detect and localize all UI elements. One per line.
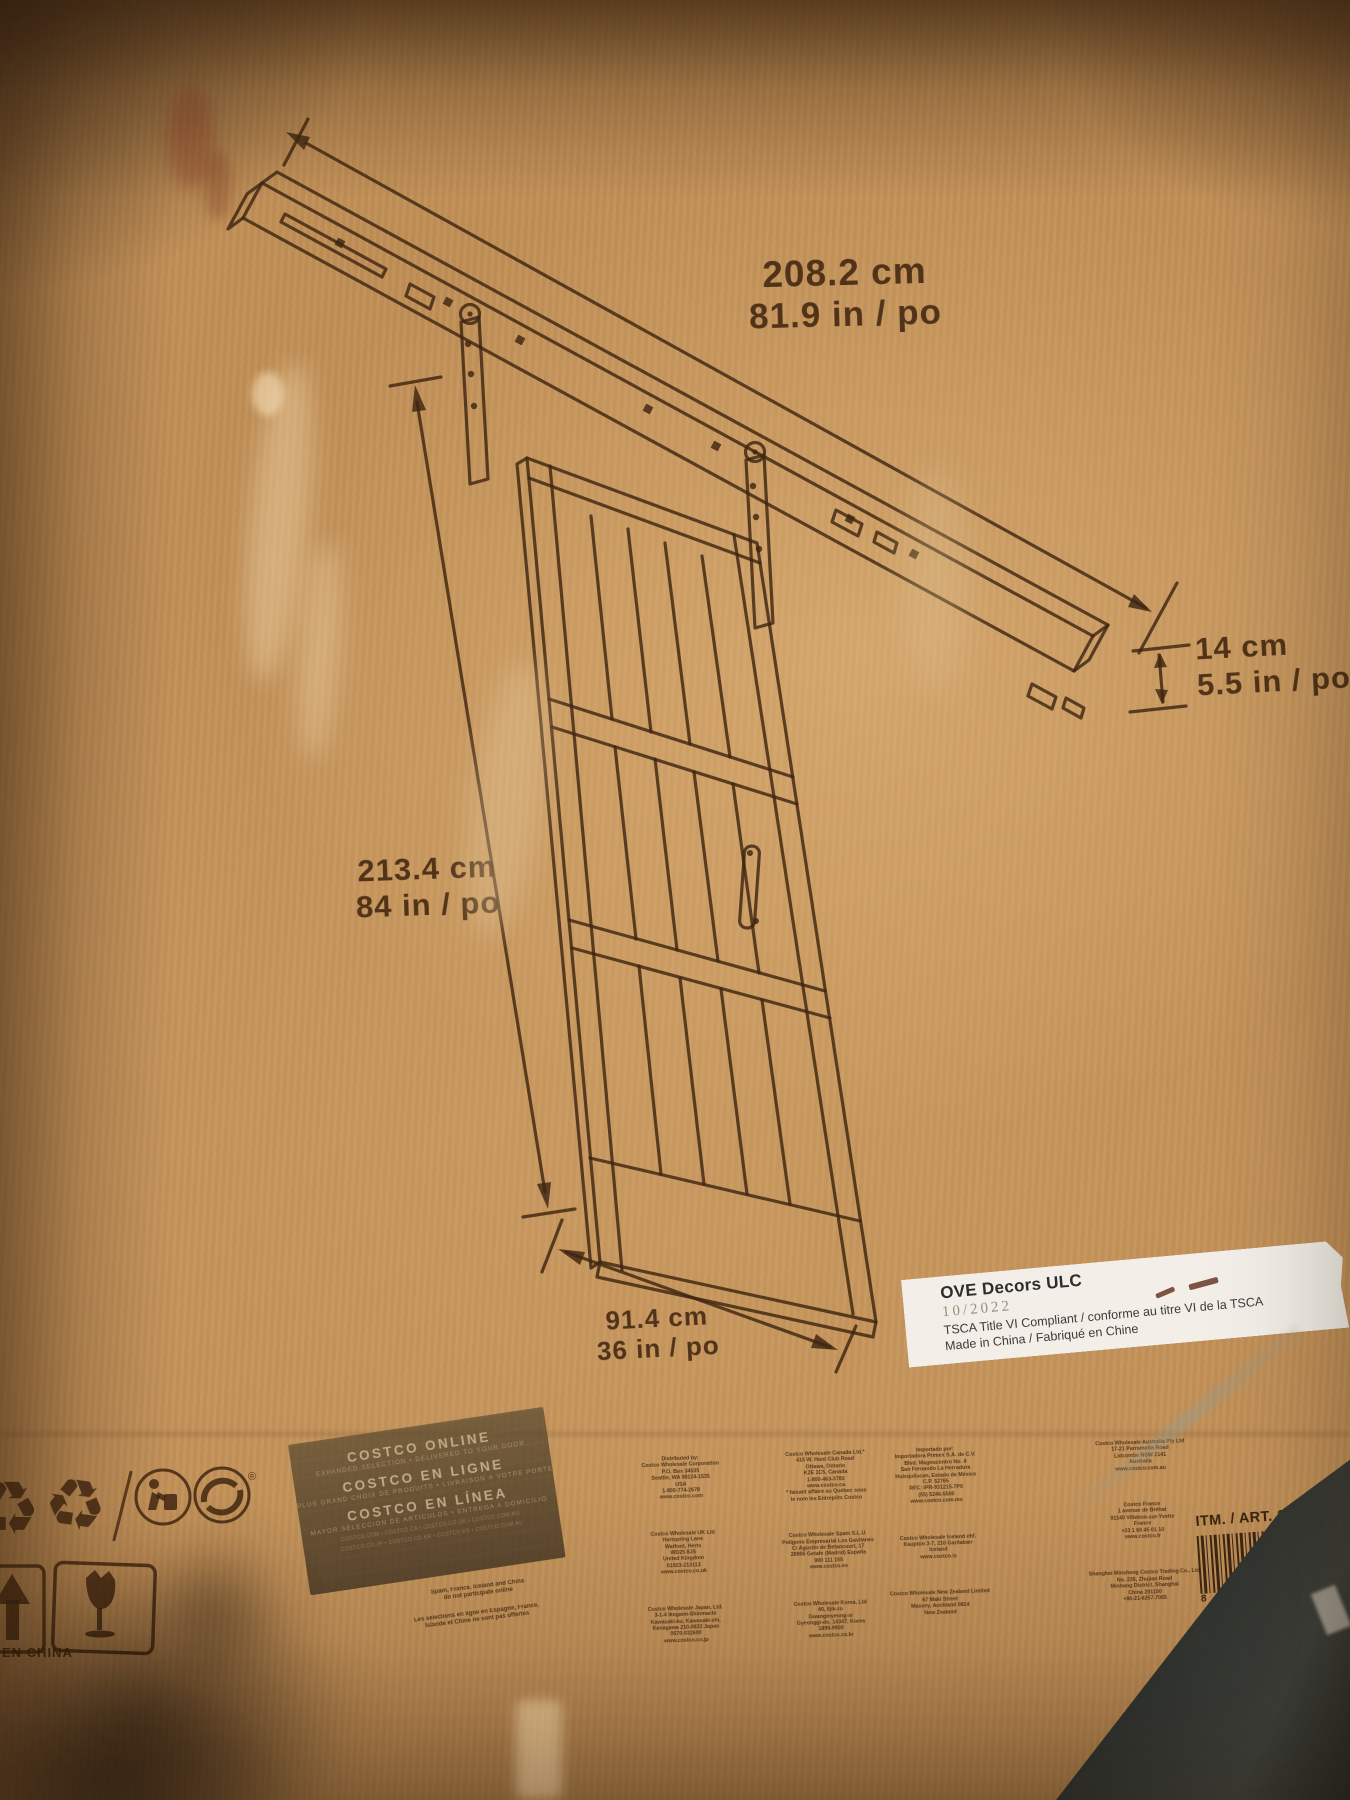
door-height-in: 84 in / po — [325, 883, 531, 926]
origin-mark-text: EN CHINA — [2, 1645, 73, 1660]
address-block: Costco Wholesale Canada Ltd.*415 W. Hunt… — [785, 1449, 867, 1503]
registered-mark: ® — [248, 1471, 256, 1483]
recycle-arrows-icon: ♻ — [39, 1460, 113, 1550]
address-column: Distributed by:Costco Wholesale Corporat… — [610, 1453, 756, 1646]
address-block: Costco Wholesale New Zealand Limited67 M… — [890, 1588, 991, 1617]
address-column: Importado por:Importadora Primex S.A. de… — [860, 1444, 1016, 1618]
door-height-dimension: 213.4 cm 84 in / po — [324, 847, 531, 926]
rail-height-dimension: 14 cm 5.5 in / po — [1194, 623, 1350, 704]
address-line: www.costco.co.jp — [649, 1636, 724, 1645]
address-line: www.costco.fr — [1111, 1533, 1175, 1542]
rail-length-dimension: 208.2 cm 81.9 in / po — [691, 248, 999, 339]
address-block: Costco Wholesale Japan, Ltd.3-1-4 Ikegam… — [648, 1604, 724, 1645]
address-block: Costco France1 avenue de Bréhat91140 Vil… — [1110, 1501, 1175, 1542]
address-block: Importado por:Importadora Primex S.A. de… — [894, 1446, 977, 1506]
green-dot-icon — [204, 1481, 240, 1513]
address-block: Costco Wholesale Iceland ehf.Kauptún 3-7… — [900, 1533, 977, 1561]
address-block: Shanghai Minsheng Costco Trading Co., Lt… — [1089, 1568, 1201, 1604]
address-line: www.costco.is — [900, 1552, 976, 1561]
address-block: Costco Wholesale UK LtdHartspring LaneWa… — [650, 1529, 716, 1576]
recycle-mobius-icon: ♻ — [0, 1466, 40, 1552]
box-photo: 208.2 cm 81.9 in / po 14 cm 5.5 in / po … — [0, 0, 1350, 1800]
address-line: www.costco.co.kr — [795, 1631, 868, 1640]
address-line: www.costco.com.mx — [896, 1497, 977, 1506]
rail-length-in: 81.9 in / po — [692, 291, 999, 340]
address-block: Costco Wholesale Korea, Ltd40, Iljik-roG… — [793, 1599, 868, 1640]
tidyman-icon: ® — [130, 1462, 270, 1532]
address-line: www.costco.com — [643, 1493, 721, 1502]
address-block: Costco Wholesale Spain S.L.U.Polígono Em… — [782, 1530, 875, 1572]
door-width-dimension: 91.4 cm 36 in / po — [559, 1298, 757, 1368]
address-block: Distributed by:Costco Wholesale Corporat… — [641, 1454, 720, 1502]
address-line: www.costco.co.uk — [652, 1568, 717, 1577]
